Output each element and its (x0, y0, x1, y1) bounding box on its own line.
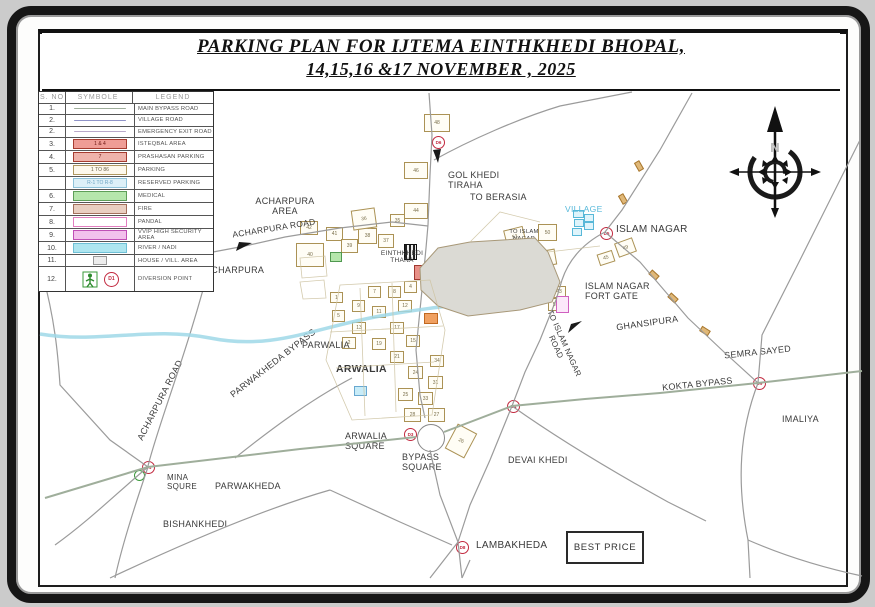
legend-label: PANDAL (135, 216, 213, 228)
legend-line-symbol (74, 131, 126, 132)
legend-label: EMERGENCY EXIT ROAD (135, 127, 213, 138)
legend-header: SYMBOLE (66, 92, 133, 103)
legend-sno: 3. (39, 138, 66, 150)
parking-plan-page: N PARKING PLAN FOR IJTEMA EINTHKHEDI BHO… (0, 0, 875, 607)
legend-box-symbol: 7 (73, 152, 127, 162)
legend-sno: 2. (39, 115, 66, 126)
legend-symbol (66, 216, 135, 228)
legend-sno: 10. (39, 242, 66, 254)
legend-box-symbol (73, 230, 127, 240)
legend-row: 1.MAIN BYPASS ROAD (39, 104, 213, 116)
legend-label: RESERVED PARKING (135, 177, 213, 189)
legend-label: PARKING (135, 164, 213, 176)
legend-sno: 12. (39, 267, 66, 291)
legend-symbol (66, 229, 135, 241)
legend-row: 2.VILLAGE ROAD (39, 115, 213, 127)
legend-sno (39, 177, 66, 189)
legend-row: R-1 TO R-8RESERVED PARKING (39, 177, 213, 190)
legend-sno: 8. (39, 216, 66, 228)
legend-row: 2.EMERGENCY EXIT ROAD (39, 127, 213, 139)
legend-sno: 4. (39, 151, 66, 163)
legend-symbol (66, 127, 135, 138)
diversion-person-icon (81, 270, 99, 288)
legend-label: VILLAGE ROAD (135, 115, 213, 126)
legend-table: S. NOSYMBOLELEGEND1.MAIN BYPASS ROAD2.VI… (38, 91, 214, 292)
legend-row: 6.MEDICAL (39, 190, 213, 203)
legend-label: MAIN BYPASS ROAD (135, 104, 213, 115)
legend-row: 11.HOUSE / VILL. AREA (39, 255, 213, 267)
legend-row: 10.RIVER / NADI (39, 242, 213, 255)
legend-box-symbol: 1 TO 86 (73, 165, 127, 175)
legend-box-symbol (93, 256, 107, 265)
legend-box-symbol (73, 243, 127, 253)
best-price-box: BEST PRICE (566, 531, 644, 564)
legend-sno: 9. (39, 229, 66, 241)
legend-label: ISTEQBAL AREA (135, 138, 213, 150)
legend-box-symbol (73, 191, 127, 201)
legend-symbol: 7 (66, 151, 135, 163)
legend-box-symbol (73, 204, 127, 214)
title-band: PARKING PLAN FOR IJTEMA EINTHKHEDI BHOPA… (42, 33, 840, 91)
compass-north-label: N (770, 140, 779, 155)
legend-symbol: 1 TO 86 (66, 164, 135, 176)
legend-box-symbol: R-1 TO R-8 (73, 178, 127, 188)
legend-line-symbol (74, 108, 126, 109)
legend-label: MEDICAL (135, 190, 213, 202)
legend-label: FIRE (135, 203, 213, 215)
page-title-line1: PARKING PLAN FOR IJTEMA EINTHKHEDI BHOPA… (42, 36, 840, 58)
legend-symbol (66, 104, 135, 115)
legend-sno: 6. (39, 190, 66, 202)
diversion-circle-icon: D1 (104, 272, 119, 287)
legend-header-row: S. NOSYMBOLELEGEND (39, 92, 213, 104)
legend-symbol (66, 115, 135, 126)
legend-label: HOUSE / VILL. AREA (135, 255, 213, 266)
page-title-line2: 14,15,16 &17 NOVEMBER , 2025 (42, 59, 840, 80)
legend-symbol: R-1 TO R-8 (66, 177, 135, 189)
legend-symbol (66, 203, 135, 215)
legend-row: 12.D1DIVERSION POINT (39, 267, 213, 291)
legend-symbol (66, 190, 135, 202)
legend-label: RIVER / NADI (135, 242, 213, 254)
legend-row: 3.1 & 4ISTEQBAL AREA (39, 138, 213, 151)
legend-header: LEGEND (133, 92, 213, 103)
legend-line-symbol (74, 120, 126, 121)
legend-symbol (66, 255, 135, 266)
legend-label: DIVERSION POINT (135, 267, 213, 291)
legend-sno: 7. (39, 203, 66, 215)
legend-row: 7.FIRE (39, 203, 213, 216)
legend-symbol: D1 (66, 267, 135, 291)
legend-row: 8.PANDAL (39, 216, 213, 229)
legend-box-symbol (73, 217, 127, 227)
legend-symbol (66, 242, 135, 254)
legend-label: VVIP HIGH SECURITY AREA (135, 229, 213, 241)
compass-rose: N (729, 106, 821, 218)
legend-symbol: 1 & 4 (66, 138, 135, 150)
legend-row: 4.7PRASHASAN PARKING (39, 151, 213, 164)
legend-sno: 5. (39, 164, 66, 176)
ijtema-gah-area (420, 238, 560, 316)
legend-sno: 2. (39, 127, 66, 138)
legend-box-symbol: 1 & 4 (73, 139, 127, 149)
legend-row: 9.VVIP HIGH SECURITY AREA (39, 229, 213, 242)
legend-sno: 1. (39, 104, 66, 115)
legend-header: S. NO (39, 92, 66, 103)
legend-row: 5.1 TO 86PARKING (39, 164, 213, 177)
legend-sno: 11. (39, 255, 66, 266)
legend-label: PRASHASAN PARKING (135, 151, 213, 163)
